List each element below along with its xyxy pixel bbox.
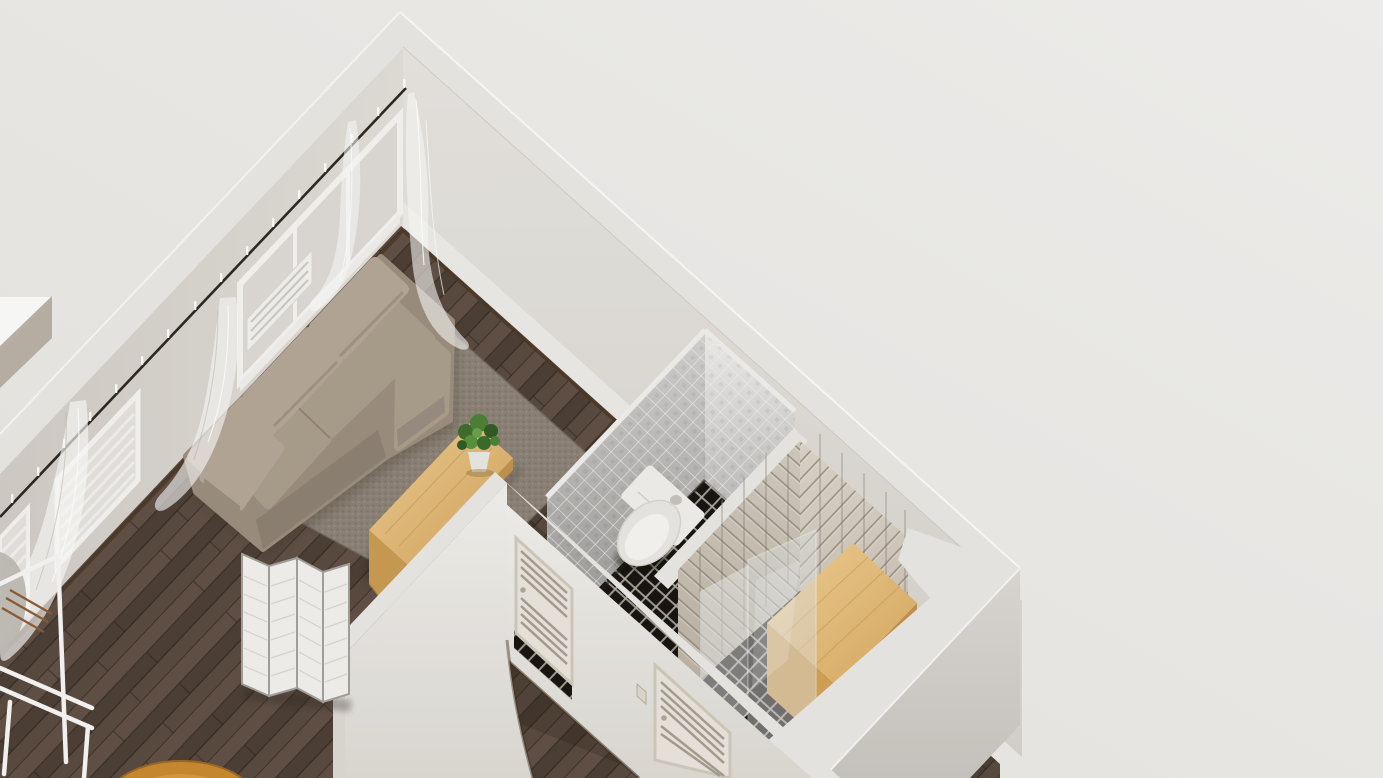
apartment-cutaway-render <box>0 0 1383 778</box>
vignette <box>0 0 1383 778</box>
render-canvas <box>0 0 1383 778</box>
